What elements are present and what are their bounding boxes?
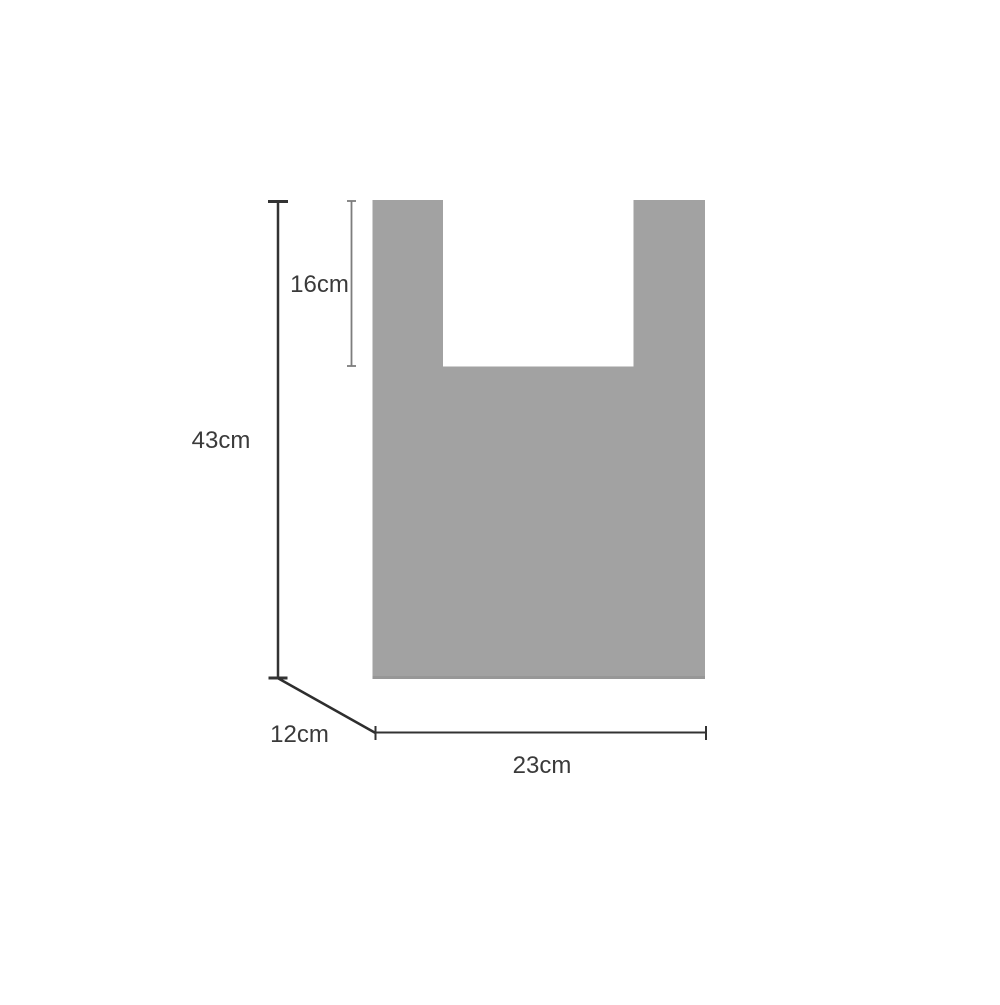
svg-text:16cm: 16cm — [290, 271, 349, 298]
svg-text:12cm: 12cm — [270, 721, 329, 748]
svg-text:23cm: 23cm — [513, 752, 572, 779]
svg-text:43cm: 43cm — [192, 427, 251, 454]
